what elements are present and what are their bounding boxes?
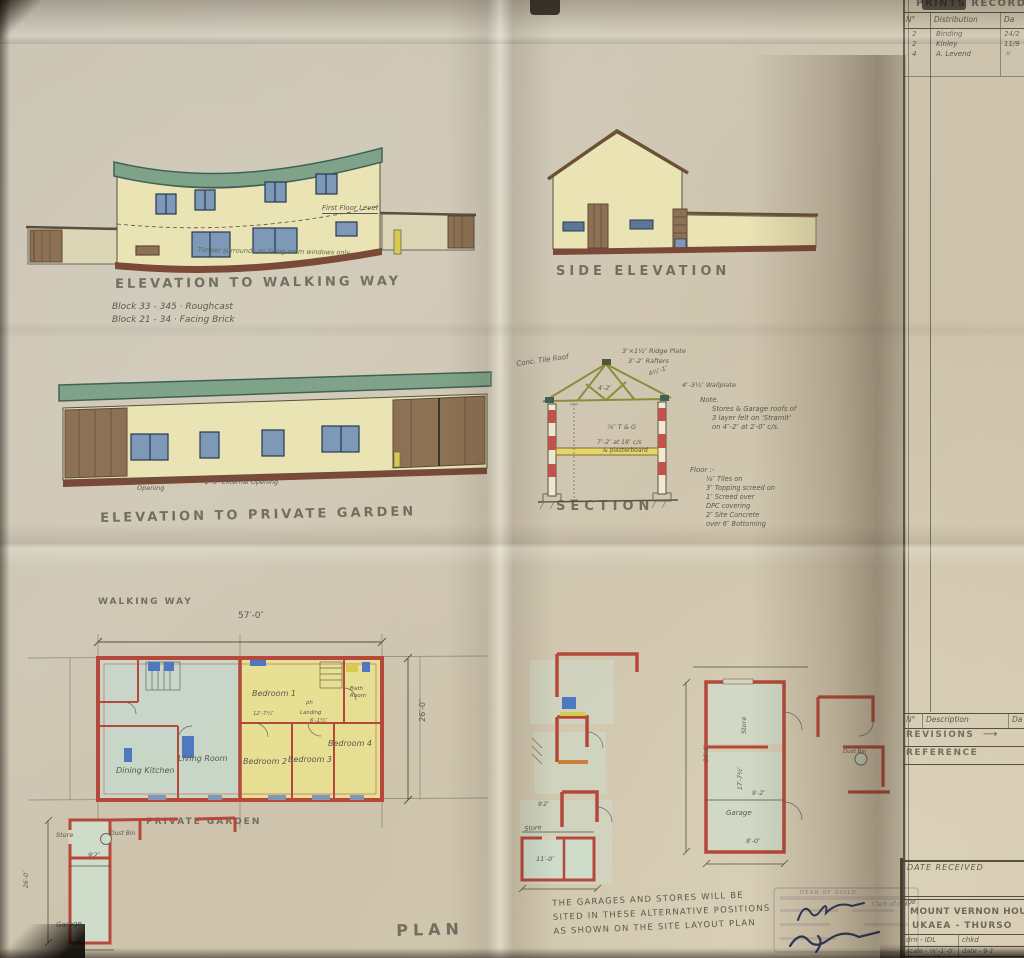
revisions-line: [903, 746, 1024, 747]
section-title: SECTION: [556, 500, 654, 514]
tg-note: ⅞″ T & G: [607, 424, 636, 431]
opening: [723, 679, 753, 684]
plan-depth-dim: 26′-0″: [419, 699, 428, 722]
plan-title: PLAN: [396, 920, 464, 939]
ridge-plate: [602, 359, 611, 365]
floor-note-4: DPC covering: [706, 503, 750, 510]
prints-row-name: Binding: [936, 31, 962, 39]
block-note-2: Block 21 - 34 · Facing Brick: [112, 316, 235, 326]
store-plan-height-dim: 26′-0″: [24, 871, 31, 888]
wallplate-right: [660, 395, 669, 401]
store-plan-width-dim: 9′2″: [88, 852, 100, 859]
dim-line-26: [404, 654, 412, 804]
title-block-line: [903, 860, 1024, 862]
room-bedroom3: Bedroom 3: [288, 756, 332, 765]
wall-right: [658, 402, 666, 494]
floor-plan-drawing: [28, 628, 488, 838]
elevation-walking-way-drawing: [20, 128, 480, 278]
floor-label: Floor :-: [690, 467, 715, 475]
alt-right-garage: Garage: [726, 810, 752, 818]
revisions-title: REVISIONS: [906, 731, 974, 741]
store-plan-store: Store: [56, 832, 73, 839]
checked-by: chkd: [962, 937, 979, 945]
date-value: date - 9-1: [962, 948, 994, 955]
section-drawing: [538, 352, 678, 517]
table-line: [903, 28, 1024, 29]
revisions-column-line: [1008, 713, 1009, 728]
room-bedroom2: Bedroom 2: [243, 758, 287, 767]
revisions-col-description: Description: [926, 716, 969, 724]
rear-wall: [680, 215, 816, 249]
door: [588, 204, 608, 248]
wall-left: [548, 404, 556, 496]
room-bedroom4: Bedroom 4: [328, 740, 372, 749]
revisions-line: [903, 764, 1024, 765]
alt-position-plan-left: [502, 642, 667, 897]
title-block-line: [903, 934, 1024, 935]
job-line-1: MOUNT VERNON HOUS: [910, 908, 1024, 918]
photo-of-architectural-drawing: First Floor Level Timber surrounds on li…: [0, 0, 1024, 958]
alt-right-store: Store: [741, 717, 748, 734]
floor-note-3: 1″ Screed over: [706, 494, 754, 501]
roofs-note-3: on 4″-2″ at 2′-0″ c/s.: [712, 424, 779, 431]
door-swings: [784, 712, 873, 820]
store-plan-garage: Garage: [56, 921, 82, 930]
alt-right-dim-h: 26′-0″: [704, 745, 711, 762]
alt-right-dim-b: 8′-0″: [746, 838, 761, 845]
joists-note-1: 7″-2″ at 18″ c/s: [597, 440, 641, 447]
prints-row-no: 2: [912, 41, 916, 49]
side-elevation-drawing: [520, 125, 820, 263]
prints-record-title: PRINTS RECORD: [916, 0, 1024, 9]
floor-note-6: over 6″ Bottoming: [706, 521, 766, 528]
alt-right-dim-w: 9′-2″: [752, 791, 765, 798]
title-block-divider: [958, 934, 959, 956]
alt-position-plan-right: [648, 652, 908, 897]
roofs-note-2: 3 layer felt on ‘Stramit’: [712, 415, 791, 422]
walking-way-label: WALKING WAY: [98, 598, 193, 608]
revisions-line: [903, 728, 1024, 729]
rafters-note: 3″-2″ Rafters: [628, 358, 669, 365]
revisions-column-line: [922, 713, 923, 728]
title-block-line: [903, 896, 1024, 897]
room-bath-2: Room: [350, 693, 366, 699]
revisions-arrow: ⟶: [983, 729, 997, 740]
garage-area: [708, 752, 782, 850]
garden-wall-right: [380, 213, 476, 254]
plan-dim-d2: 6′-1½″: [310, 719, 327, 725]
title-block-line: [903, 899, 1024, 900]
room-ph: ph: [306, 701, 313, 707]
store-plan-dustbin: Dust Bin: [110, 831, 135, 838]
elevation-walking-way-title: ELEVATION TO WALKING WAY: [115, 275, 401, 292]
tie-note: 4′-2″: [598, 386, 611, 393]
first-floor-area: [240, 660, 380, 798]
floor-note-5: 2″ Site Concrete: [706, 512, 759, 519]
block-note-1: Block 33 - 345 · Roughcast: [112, 303, 233, 313]
wallplate-left: [545, 397, 554, 403]
sheet-border-line: [903, 0, 905, 958]
second-option-walls: [818, 697, 890, 792]
roofs-note-1: Stores & Garage roofs of: [712, 406, 796, 413]
plan-dim-d1: 12′-7½″: [253, 712, 274, 718]
fixture-yellow: [560, 712, 586, 716]
alt-left-dim-1: 9′2″: [538, 802, 549, 809]
room-bath-1: Bath: [350, 686, 363, 692]
first-floor-level-note: First Floor Level: [322, 205, 378, 214]
joists-note-2: & plasterboard: [603, 448, 648, 455]
prints-row-name: A. Levend: [936, 51, 971, 59]
prints-col-no: N°: [906, 16, 915, 24]
alt-right-dim-i: 17′-7½″: [738, 767, 745, 790]
table-line: [903, 12, 1024, 13]
stamp-dean-text: DEAN OF GUILD: [800, 890, 857, 896]
coping: [677, 213, 818, 215]
alt-right-dustbin: Dust Bin: [843, 749, 866, 755]
prints-col-distribution: Distribution: [934, 16, 978, 24]
prints-row-date: 11/9: [1004, 41, 1020, 49]
room-dining: Dining Kitchen: [116, 767, 174, 776]
table-column-line: [930, 12, 931, 712]
external-opening-note-1b: Opening: [137, 485, 164, 492]
job-line-2: UKAEA - THURSO: [912, 922, 1012, 932]
stamp: [774, 888, 918, 952]
table-line: [903, 76, 1024, 77]
prints-row-no: 4: [912, 51, 916, 59]
plan-width-dim: 57′-0″: [238, 612, 264, 622]
revisions-col-date: Da: [1012, 716, 1022, 724]
side-elevation-title: SIDE ELEVATION: [556, 265, 730, 279]
note-label: Note.: [700, 397, 719, 405]
store-cell: [522, 838, 594, 880]
ridge-note: 3″×1½″ Ridge Plate: [622, 348, 686, 355]
prints-row-date: 〃: [1004, 51, 1011, 59]
prints-row-no: 2: [912, 31, 916, 39]
prints-row-date: 24/2: [1004, 31, 1020, 39]
fixture-orange: [558, 760, 588, 764]
revisions-col-no: N°: [906, 716, 915, 724]
garage-door-left: [65, 408, 127, 478]
slit-window: [630, 220, 653, 229]
table-column-line: [1000, 12, 1001, 76]
drainpipe: [673, 209, 687, 248]
drawn-by: drn - IDL: [906, 937, 936, 945]
prints-row-name: Kinley: [936, 41, 957, 49]
reference-title: REFERENCE: [906, 749, 978, 759]
room-landing: Landing: [300, 711, 321, 717]
sheet-border-line-inner: [908, 0, 909, 958]
alt-left-dim-2: 11′-0″: [536, 856, 555, 863]
job-label: JOB: [906, 900, 916, 906]
signature-2: [790, 932, 879, 952]
slit-window: [563, 222, 584, 231]
external-opening-note-2: 2′-3″ External Opening: [205, 479, 278, 486]
floor-note-1: ⅛″ Tiles on: [706, 476, 742, 483]
room-living: Living Room: [178, 755, 227, 764]
room-bedroom1: Bedroom 1: [252, 690, 296, 699]
gable-wall: [553, 133, 682, 249]
floor-note-2: 3″ Topping screed on: [706, 485, 775, 492]
fixture-blue: [562, 697, 576, 709]
date-received-label: DATE RECEIVED: [907, 864, 984, 873]
prints-col-date: Da: [1004, 16, 1014, 24]
wallplate-note: 4″-3¼″ Wallplate: [682, 382, 736, 389]
title-block-edge: [900, 858, 903, 958]
garden-wall-left: [26, 227, 118, 264]
garage-door-right: [393, 396, 485, 468]
store-area: [708, 684, 782, 744]
